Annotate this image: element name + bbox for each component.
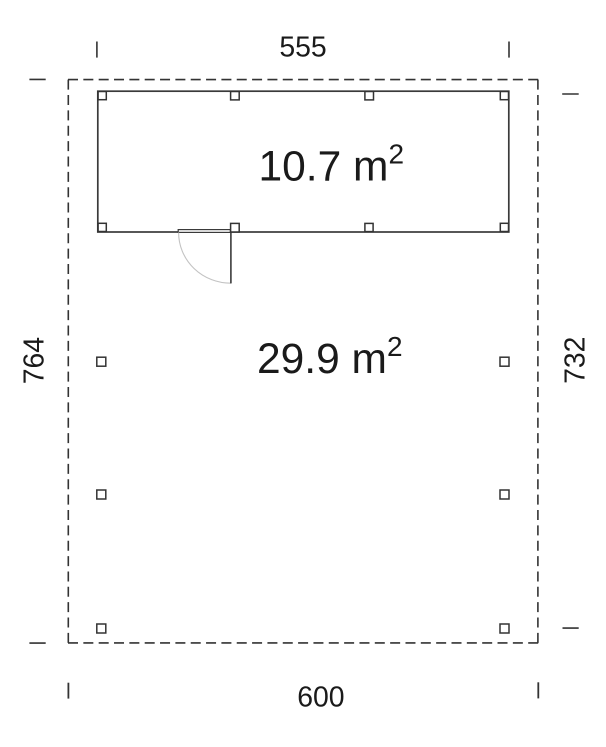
svg-text:29.9 m2: 29.9 m2 xyxy=(257,331,403,383)
svg-text:10.7 m2: 10.7 m2 xyxy=(259,139,405,191)
svg-text:764: 764 xyxy=(19,337,51,384)
svg-text:600: 600 xyxy=(297,681,344,713)
svg-text:555: 555 xyxy=(279,31,326,63)
svg-text:732: 732 xyxy=(560,337,592,384)
